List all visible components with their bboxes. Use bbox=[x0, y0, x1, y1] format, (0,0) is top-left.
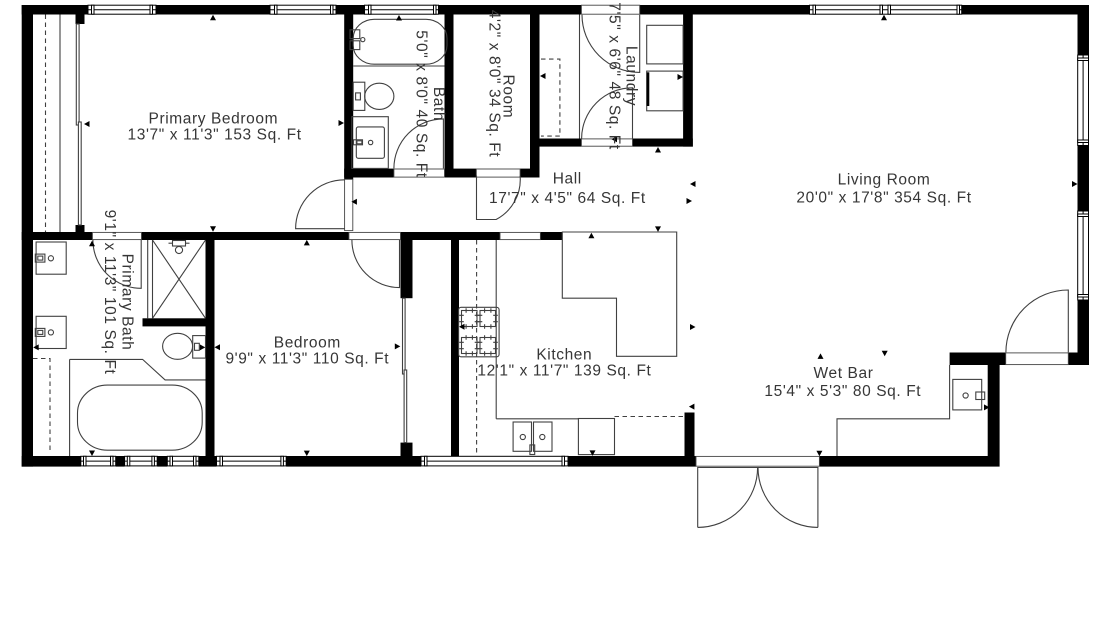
svg-text:Primary Bath: Primary Bath bbox=[119, 254, 136, 351]
svg-text:Kitchen: Kitchen bbox=[536, 347, 592, 364]
svg-text:5'0" x 8'0" 40 Sq. Ft: 5'0" x 8'0" 40 Sq. Ft bbox=[413, 30, 430, 178]
svg-text:13'7" x 11'3" 153 Sq. Ft: 13'7" x 11'3" 153 Sq. Ft bbox=[128, 127, 302, 144]
svg-text:20'0" x 17'8" 354 Sq. Ft: 20'0" x 17'8" 354 Sq. Ft bbox=[796, 190, 971, 207]
svg-text:Laundry: Laundry bbox=[623, 46, 640, 106]
svg-text:Hall: Hall bbox=[553, 171, 582, 188]
svg-text:4'2" x 8'0" 34 Sq. Ft: 4'2" x 8'0" 34 Sq. Ft bbox=[486, 10, 503, 158]
svg-text:Living Room: Living Room bbox=[838, 171, 931, 188]
svg-text:7'5" x 6'6" 48 Sq. Ft: 7'5" x 6'6" 48 Sq. Ft bbox=[606, 2, 623, 150]
svg-text:15'4" x 5'3" 80 Sq. Ft: 15'4" x 5'3" 80 Sq. Ft bbox=[764, 383, 921, 400]
svg-text:Bath: Bath bbox=[430, 87, 447, 121]
svg-text:Wet Bar: Wet Bar bbox=[814, 365, 874, 382]
svg-text:17'7" x 4'5" 64 Sq. Ft: 17'7" x 4'5" 64 Sq. Ft bbox=[489, 190, 646, 207]
svg-text:12'1" x 11'7" 139 Sq. Ft: 12'1" x 11'7" 139 Sq. Ft bbox=[477, 363, 651, 380]
svg-text:9'9" x 11'3" 110 Sq. Ft: 9'9" x 11'3" 110 Sq. Ft bbox=[225, 351, 389, 368]
svg-text:Bedroom: Bedroom bbox=[274, 335, 341, 352]
svg-text:9'1" x 11'3" 101 Sq. Ft: 9'1" x 11'3" 101 Sq. Ft bbox=[101, 210, 118, 375]
svg-text:Primary Bedroom: Primary Bedroom bbox=[149, 111, 279, 128]
